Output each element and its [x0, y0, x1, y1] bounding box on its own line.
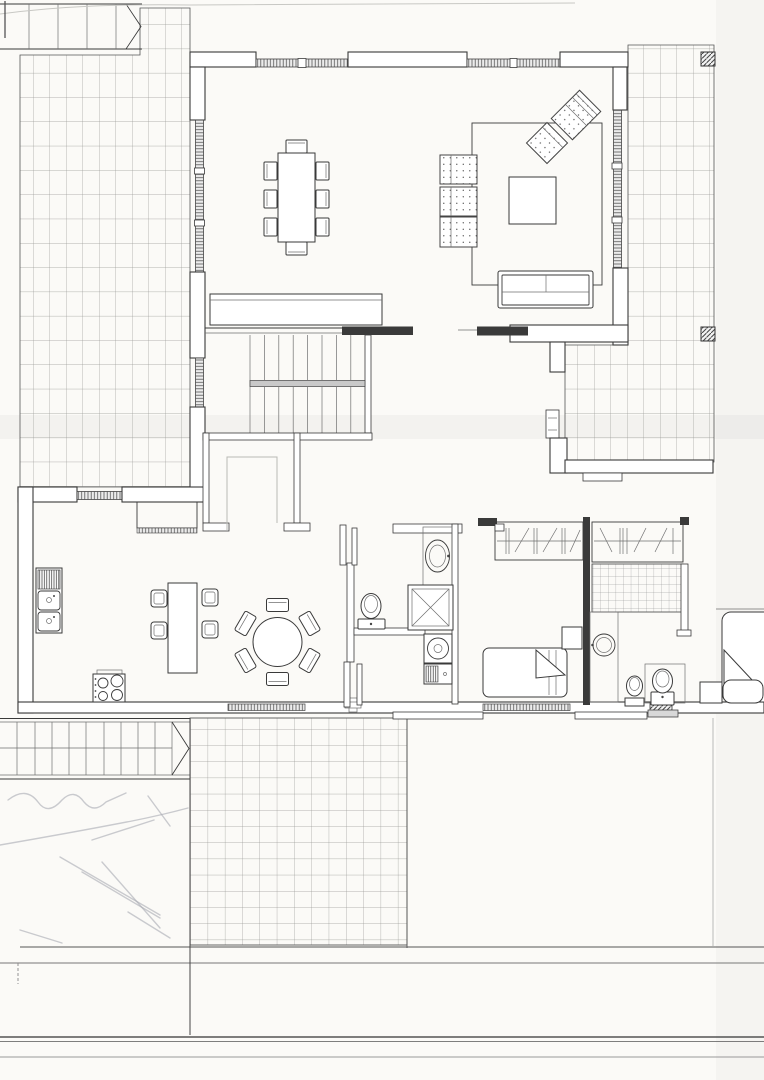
window-band: [77, 492, 122, 500]
toilet-2: [651, 669, 674, 705]
window-band: [196, 358, 204, 407]
cooktop: [93, 670, 125, 702]
window-band: [614, 110, 622, 270]
floor-plan-scan: [0, 0, 764, 1080]
window-band: [228, 704, 305, 711]
wall-stub: [478, 518, 497, 526]
kitchen-sink: [36, 568, 62, 633]
bathroom-west-wall: [347, 563, 354, 662]
terrace-window: [546, 410, 559, 438]
washing-machine: [424, 634, 452, 663]
tiled-terrace-top-left: [20, 8, 190, 487]
dark-partition-wall: [583, 517, 590, 705]
sofa: [498, 271, 593, 308]
hatched-column: [701, 52, 715, 66]
stair-base-wall: [203, 433, 372, 440]
kitchen-island: [168, 583, 197, 673]
laundry-unit: [424, 664, 452, 684]
tiled-terrace-bottom: [190, 718, 407, 945]
sliding-door-leaf: [477, 327, 528, 336]
exterior-step: [575, 712, 647, 719]
exterior-step: [393, 712, 483, 719]
nightstand: [700, 682, 722, 703]
hatched-column: [701, 327, 715, 341]
bidet: [625, 676, 644, 706]
nightstand: [562, 627, 582, 649]
shower: [408, 585, 453, 630]
bathroom2-east-wall: [681, 564, 688, 634]
sliding-door-leaf: [342, 327, 413, 336]
wall-stub: [680, 517, 689, 525]
drainer: [38, 570, 60, 589]
dining-table: [278, 153, 315, 242]
kitchen-west-wall: [18, 487, 33, 713]
duvet-roll: [723, 680, 763, 703]
single-bed: [483, 648, 567, 697]
right-margin-shade: [716, 0, 764, 1080]
stair-landing: [250, 381, 365, 387]
sideboard: [210, 294, 382, 325]
tiled-shower-floor: [592, 564, 683, 612]
window-band: [483, 704, 570, 711]
north-wall: [190, 52, 628, 68]
dotted-armchairs: [440, 155, 477, 247]
exterior-step: [648, 710, 678, 717]
window-band: [196, 120, 204, 272]
coffee-table: [509, 177, 556, 224]
terrace-step: [583, 473, 622, 481]
